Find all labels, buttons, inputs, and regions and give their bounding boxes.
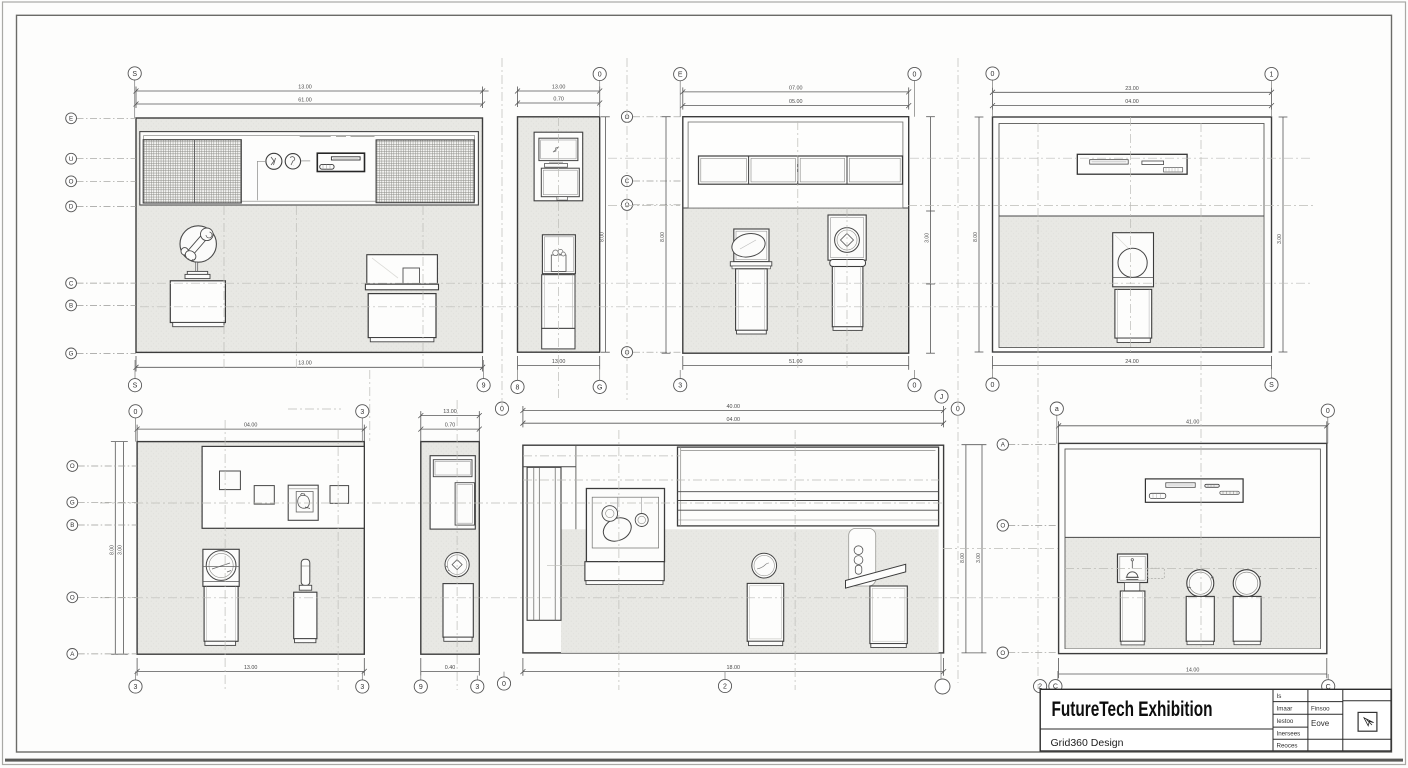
svg-text:8.00: 8.00 <box>660 232 666 242</box>
svg-text:Eove: Eove <box>1311 719 1330 728</box>
svg-text:8: 8 <box>516 384 520 391</box>
svg-text:18.00: 18.00 <box>727 665 741 671</box>
svg-text:0: 0 <box>598 72 602 79</box>
svg-text:04.00: 04.00 <box>1125 99 1139 105</box>
svg-text:Iestoo: Iestoo <box>1277 718 1294 725</box>
svg-text:0: 0 <box>991 382 995 389</box>
svg-text:8.00: 8.00 <box>973 232 979 242</box>
svg-text:D: D <box>69 204 74 211</box>
svg-text:61.00: 61.00 <box>298 98 312 104</box>
svg-text:8.00: 8.00 <box>960 553 966 563</box>
svg-text:B: B <box>69 303 73 310</box>
svg-text:0: 0 <box>1326 408 1330 415</box>
svg-text:Imaar: Imaar <box>1277 706 1293 713</box>
svg-text:B: B <box>70 522 74 529</box>
svg-text:0: 0 <box>134 409 138 416</box>
svg-text:2: 2 <box>723 684 727 691</box>
svg-text:FutureTech Exhibition: FutureTech Exhibition <box>1052 697 1213 721</box>
svg-text:9: 9 <box>482 383 486 390</box>
svg-text:3.00: 3.00 <box>925 233 931 243</box>
svg-text:1: 1 <box>1270 72 1274 79</box>
svg-text:G: G <box>597 384 602 391</box>
svg-text:0: 0 <box>500 406 504 413</box>
svg-text:Grid360 Design: Grid360 Design <box>1051 737 1124 749</box>
svg-text:13.00: 13.00 <box>244 665 258 671</box>
svg-text:0: 0 <box>913 383 917 390</box>
svg-text:8.00: 8.00 <box>110 545 116 555</box>
svg-text:40.00: 40.00 <box>727 404 741 410</box>
svg-text:S: S <box>133 383 138 390</box>
svg-text:8.00: 8.00 <box>600 232 606 242</box>
svg-text:3: 3 <box>678 383 682 390</box>
svg-text:3.00: 3.00 <box>1277 234 1283 244</box>
svg-text:J: J <box>940 394 944 401</box>
svg-text:G: G <box>69 351 74 358</box>
svg-text:23.00: 23.00 <box>1125 86 1139 92</box>
svg-text:3: 3 <box>134 684 138 691</box>
svg-text:O: O <box>70 595 75 602</box>
svg-text:3.00: 3.00 <box>118 545 124 555</box>
svg-text:3: 3 <box>475 684 479 691</box>
svg-text:C: C <box>69 280 74 287</box>
svg-text:04.00: 04.00 <box>244 423 258 429</box>
svg-text:13.00: 13.00 <box>552 85 566 91</box>
svg-text:24.00: 24.00 <box>1125 359 1139 365</box>
svg-text:Finsoo: Finsoo <box>1311 706 1330 713</box>
svg-text:0: 0 <box>956 406 960 413</box>
svg-text:3: 3 <box>360 684 364 691</box>
svg-text:Inersees: Inersees <box>1277 731 1301 738</box>
svg-text:S: S <box>1269 382 1274 389</box>
svg-text:05.00: 05.00 <box>789 99 803 105</box>
svg-text:0: 0 <box>991 71 995 78</box>
svg-text:E: E <box>678 72 683 79</box>
svg-text:O: O <box>69 179 74 186</box>
svg-text:Reoces: Reoces <box>1277 743 1298 750</box>
svg-text:13.00: 13.00 <box>298 85 312 91</box>
svg-text:13.00: 13.00 <box>443 409 457 415</box>
svg-text:3.00: 3.00 <box>976 553 982 563</box>
svg-text:O: O <box>1000 650 1005 657</box>
svg-text:0.70: 0.70 <box>553 97 564 103</box>
svg-text:14.00: 14.00 <box>1186 667 1200 673</box>
svg-text:Is: Is <box>1277 693 1282 700</box>
svg-text:E: E <box>69 116 73 123</box>
svg-text:9: 9 <box>419 684 423 691</box>
svg-text:3: 3 <box>360 409 364 416</box>
svg-text:0.70: 0.70 <box>445 423 456 429</box>
svg-text:O: O <box>70 463 75 470</box>
svg-text:51.00: 51.00 <box>789 359 803 365</box>
svg-text:S: S <box>132 71 137 78</box>
svg-text:O: O <box>1000 523 1005 530</box>
svg-text:0: 0 <box>502 681 506 688</box>
svg-text:G: G <box>70 500 75 507</box>
svg-text:07.00: 07.00 <box>789 86 803 92</box>
svg-text:0.40: 0.40 <box>445 665 456 671</box>
svg-text:13.00: 13.00 <box>298 361 312 367</box>
svg-text:a: a <box>1055 406 1059 413</box>
svg-text:0: 0 <box>913 72 917 79</box>
svg-text:04.00: 04.00 <box>727 417 741 423</box>
svg-text:41.00: 41.00 <box>1186 419 1200 425</box>
svg-text:U: U <box>69 156 73 163</box>
